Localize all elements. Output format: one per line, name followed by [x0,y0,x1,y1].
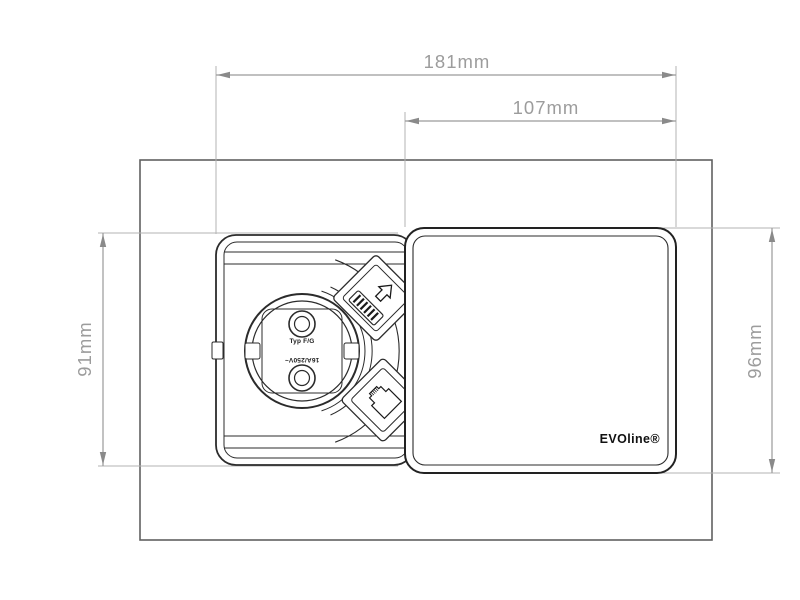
arrowhead-icon [406,118,419,124]
arrowhead-icon [100,234,106,247]
dimension-cover-height: 96mm [744,228,775,473]
dimension-label-cover-width: 107mm [513,97,580,118]
dimension-unit-height: 91mm [74,233,106,466]
arrowhead-icon [769,459,775,472]
dimension-label-cover-height: 96mm [744,323,765,378]
earth-clip [245,343,260,359]
brand-logo: EVOline® [600,432,661,446]
arrowhead-icon [217,72,230,78]
technical-drawing-page: 181mm 107mm 91mm 96mm [0,0,800,600]
arrowhead-icon [662,118,675,124]
earth-clip [344,343,359,359]
outlet-type-label: Typ F/G [289,338,314,345]
mounting-clip [212,342,223,359]
schuko-outlet: Typ F/G 16A/250V~ [245,294,359,408]
arrowhead-icon [662,72,675,78]
arrowhead-icon [100,452,106,465]
dimension-total-width: 181mm [216,51,676,78]
dimension-label-total-width: 181mm [424,51,491,72]
arrowhead-icon [769,229,775,242]
outlet-rating-label: 16A/250V~ [285,356,320,363]
cover-plate: EVOline® [405,228,676,473]
socket-unit: Typ F/G 16A/250V~ [212,235,425,465]
dimension-cover-width: 107mm [405,97,676,124]
dimension-label-unit-height: 91mm [74,321,95,376]
evoline-dimension-drawing: 181mm 107mm 91mm 96mm [0,0,800,600]
